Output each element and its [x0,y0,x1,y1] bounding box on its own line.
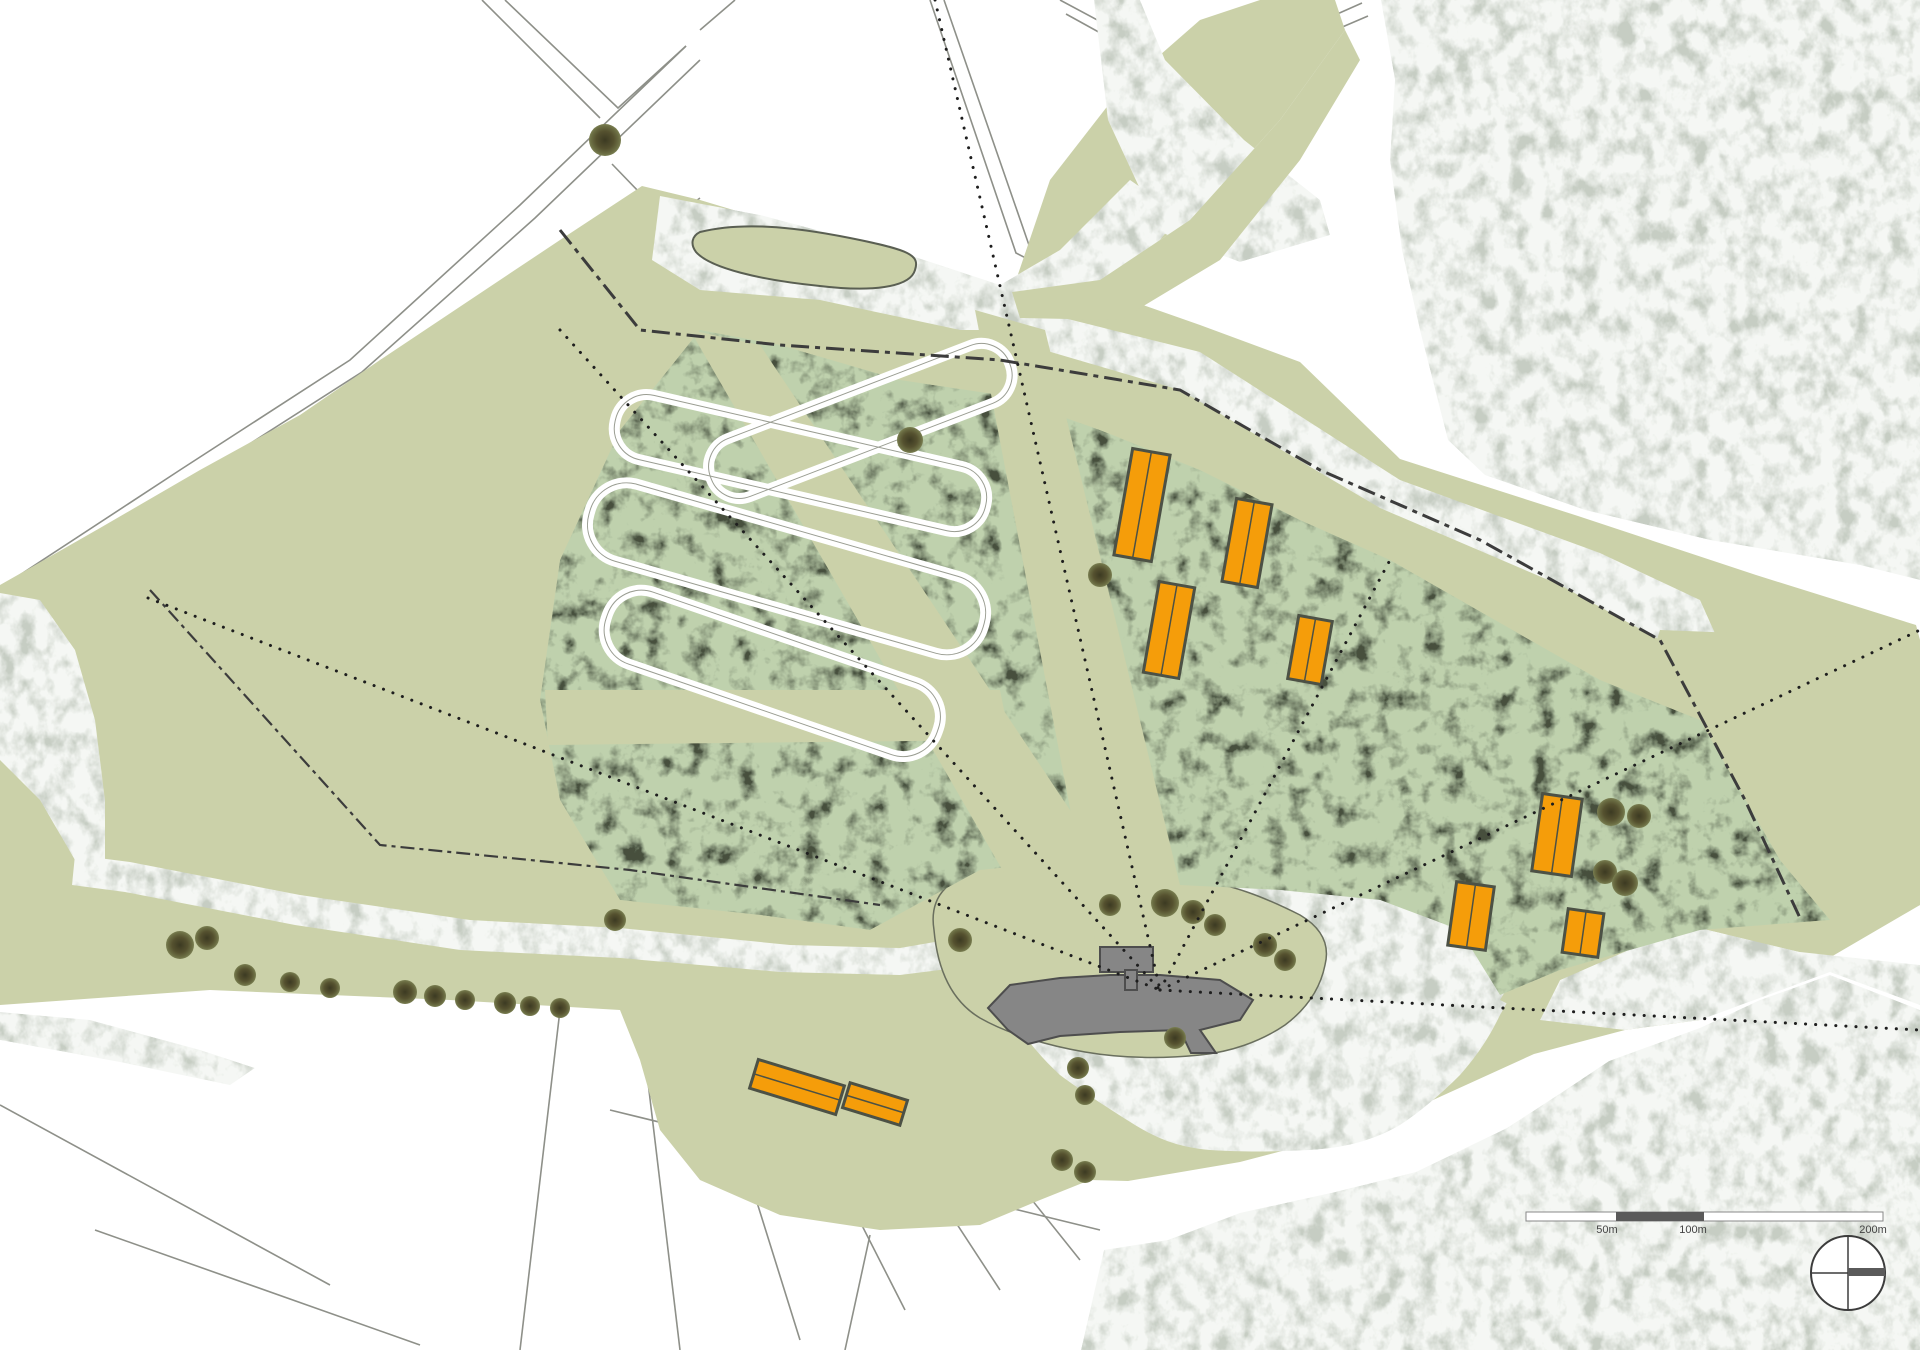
svg-text:50m: 50m [1596,1224,1617,1236]
svg-text:200m: 200m [1859,1224,1887,1236]
svg-text:100m: 100m [1679,1224,1707,1236]
